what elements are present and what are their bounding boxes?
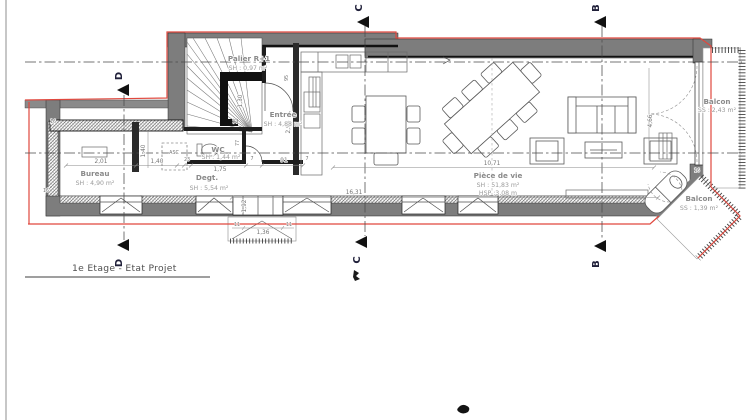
svg-text:SH : 4,88 m²: SH : 4,88 m² [264,121,303,128]
dim-text: 77 [235,140,241,146]
dim-text: 16 [50,119,56,125]
asc-label: ASC [169,150,179,156]
dim-text: 11 [234,222,240,228]
desk [82,147,107,157]
dim-text: 2,01 [95,159,108,165]
coffee-table [585,142,622,158]
balcony-door [233,196,283,215]
svg-text:SH : 5,54 m²: SH : 5,54 m² [190,185,229,192]
ink-mark [457,405,469,414]
dim-text: 1,40 [151,159,164,165]
room-label-palier: Palier R+1 [228,54,270,63]
svg-text:HSP :3,08 m: HSP :3,08 m [479,190,517,197]
window [283,196,331,214]
dim-text: 4,66 [648,114,654,127]
room-label-entree: Entrée [270,110,297,119]
section-marker-b-top: B [591,4,606,28]
section-letter: B [591,4,602,12]
dim-text: 7 [305,156,308,162]
dim-text: 7 [250,156,253,162]
entree-kitchen-wall [293,43,299,175]
window [402,196,445,214]
section-marker-c-top: C [354,4,369,28]
dim-text: 16 [43,188,49,194]
entree-door-swing [265,83,293,111]
ink-mark [353,270,360,281]
dim-text: 11 [286,222,292,228]
dim-text: 91 [280,158,288,164]
kitchen-table [352,96,420,165]
window [196,196,233,214]
window [458,196,498,214]
floorplan-sheet: C B D C B D [0,0,750,420]
room-label-piece-de-vie: Pièce de vie [474,171,523,180]
section-letter: C [354,4,365,11]
svg-text:SH : 51,83 m²: SH : 51,83 m² [477,182,520,189]
room-label-wc: WC [211,145,224,154]
section-letter: C [352,256,363,263]
svg-text:SH : 0,97 m²: SH : 0,97 m² [229,65,268,72]
wc-door-swing [246,146,262,162]
dim-text: 1,92 [242,199,248,212]
armchair [530,138,564,164]
section-marker-d-top: D [114,72,129,96]
dim-text: 16,31 [346,190,363,196]
room-label-degt: Degt. [196,173,218,182]
dim-text: 95 [284,75,290,81]
svg-text:SS : 2,43 m²: SS : 2,43 m² [698,107,737,114]
staircase [187,38,262,134]
balcony-east-floor [703,48,740,188]
section-marker-c-bottom: C [352,236,367,281]
window [100,196,142,214]
dim-text: 1,40 [141,144,147,157]
dim-text: 16 [694,168,700,174]
svg-text:SS : 1,39 m²: SS : 1,39 m² [680,205,719,212]
dim-text: 1,30 [238,94,244,107]
room-label-balcon-sud: Balcon [685,194,712,203]
section-letter: B [591,260,602,268]
dim-text: 15 [233,118,239,124]
room-label-bureau: Bureau [81,169,110,178]
dim-text: 10,71 [484,161,501,167]
dim-text: 23 [184,157,190,163]
bureau-right-wall [132,122,139,172]
balcony-south [228,217,296,241]
floorplan-canvas: C B D C B D [0,0,750,420]
plan-title: 1e Etage - Etat Projet [72,263,177,274]
dim-text: 1,36 [257,230,270,236]
section-letter: D [114,72,125,80]
svg-text:SH : 4,90 m²: SH : 4,90 m² [76,180,115,187]
title-block: 1e Etage - Etat Projet [25,263,210,277]
svg-text:SH : 1,44 m²: SH : 1,44 m² [202,154,241,161]
section-marker-b-bottom: B [591,240,606,268]
room-label-balcon-est: Balcon [703,97,730,106]
